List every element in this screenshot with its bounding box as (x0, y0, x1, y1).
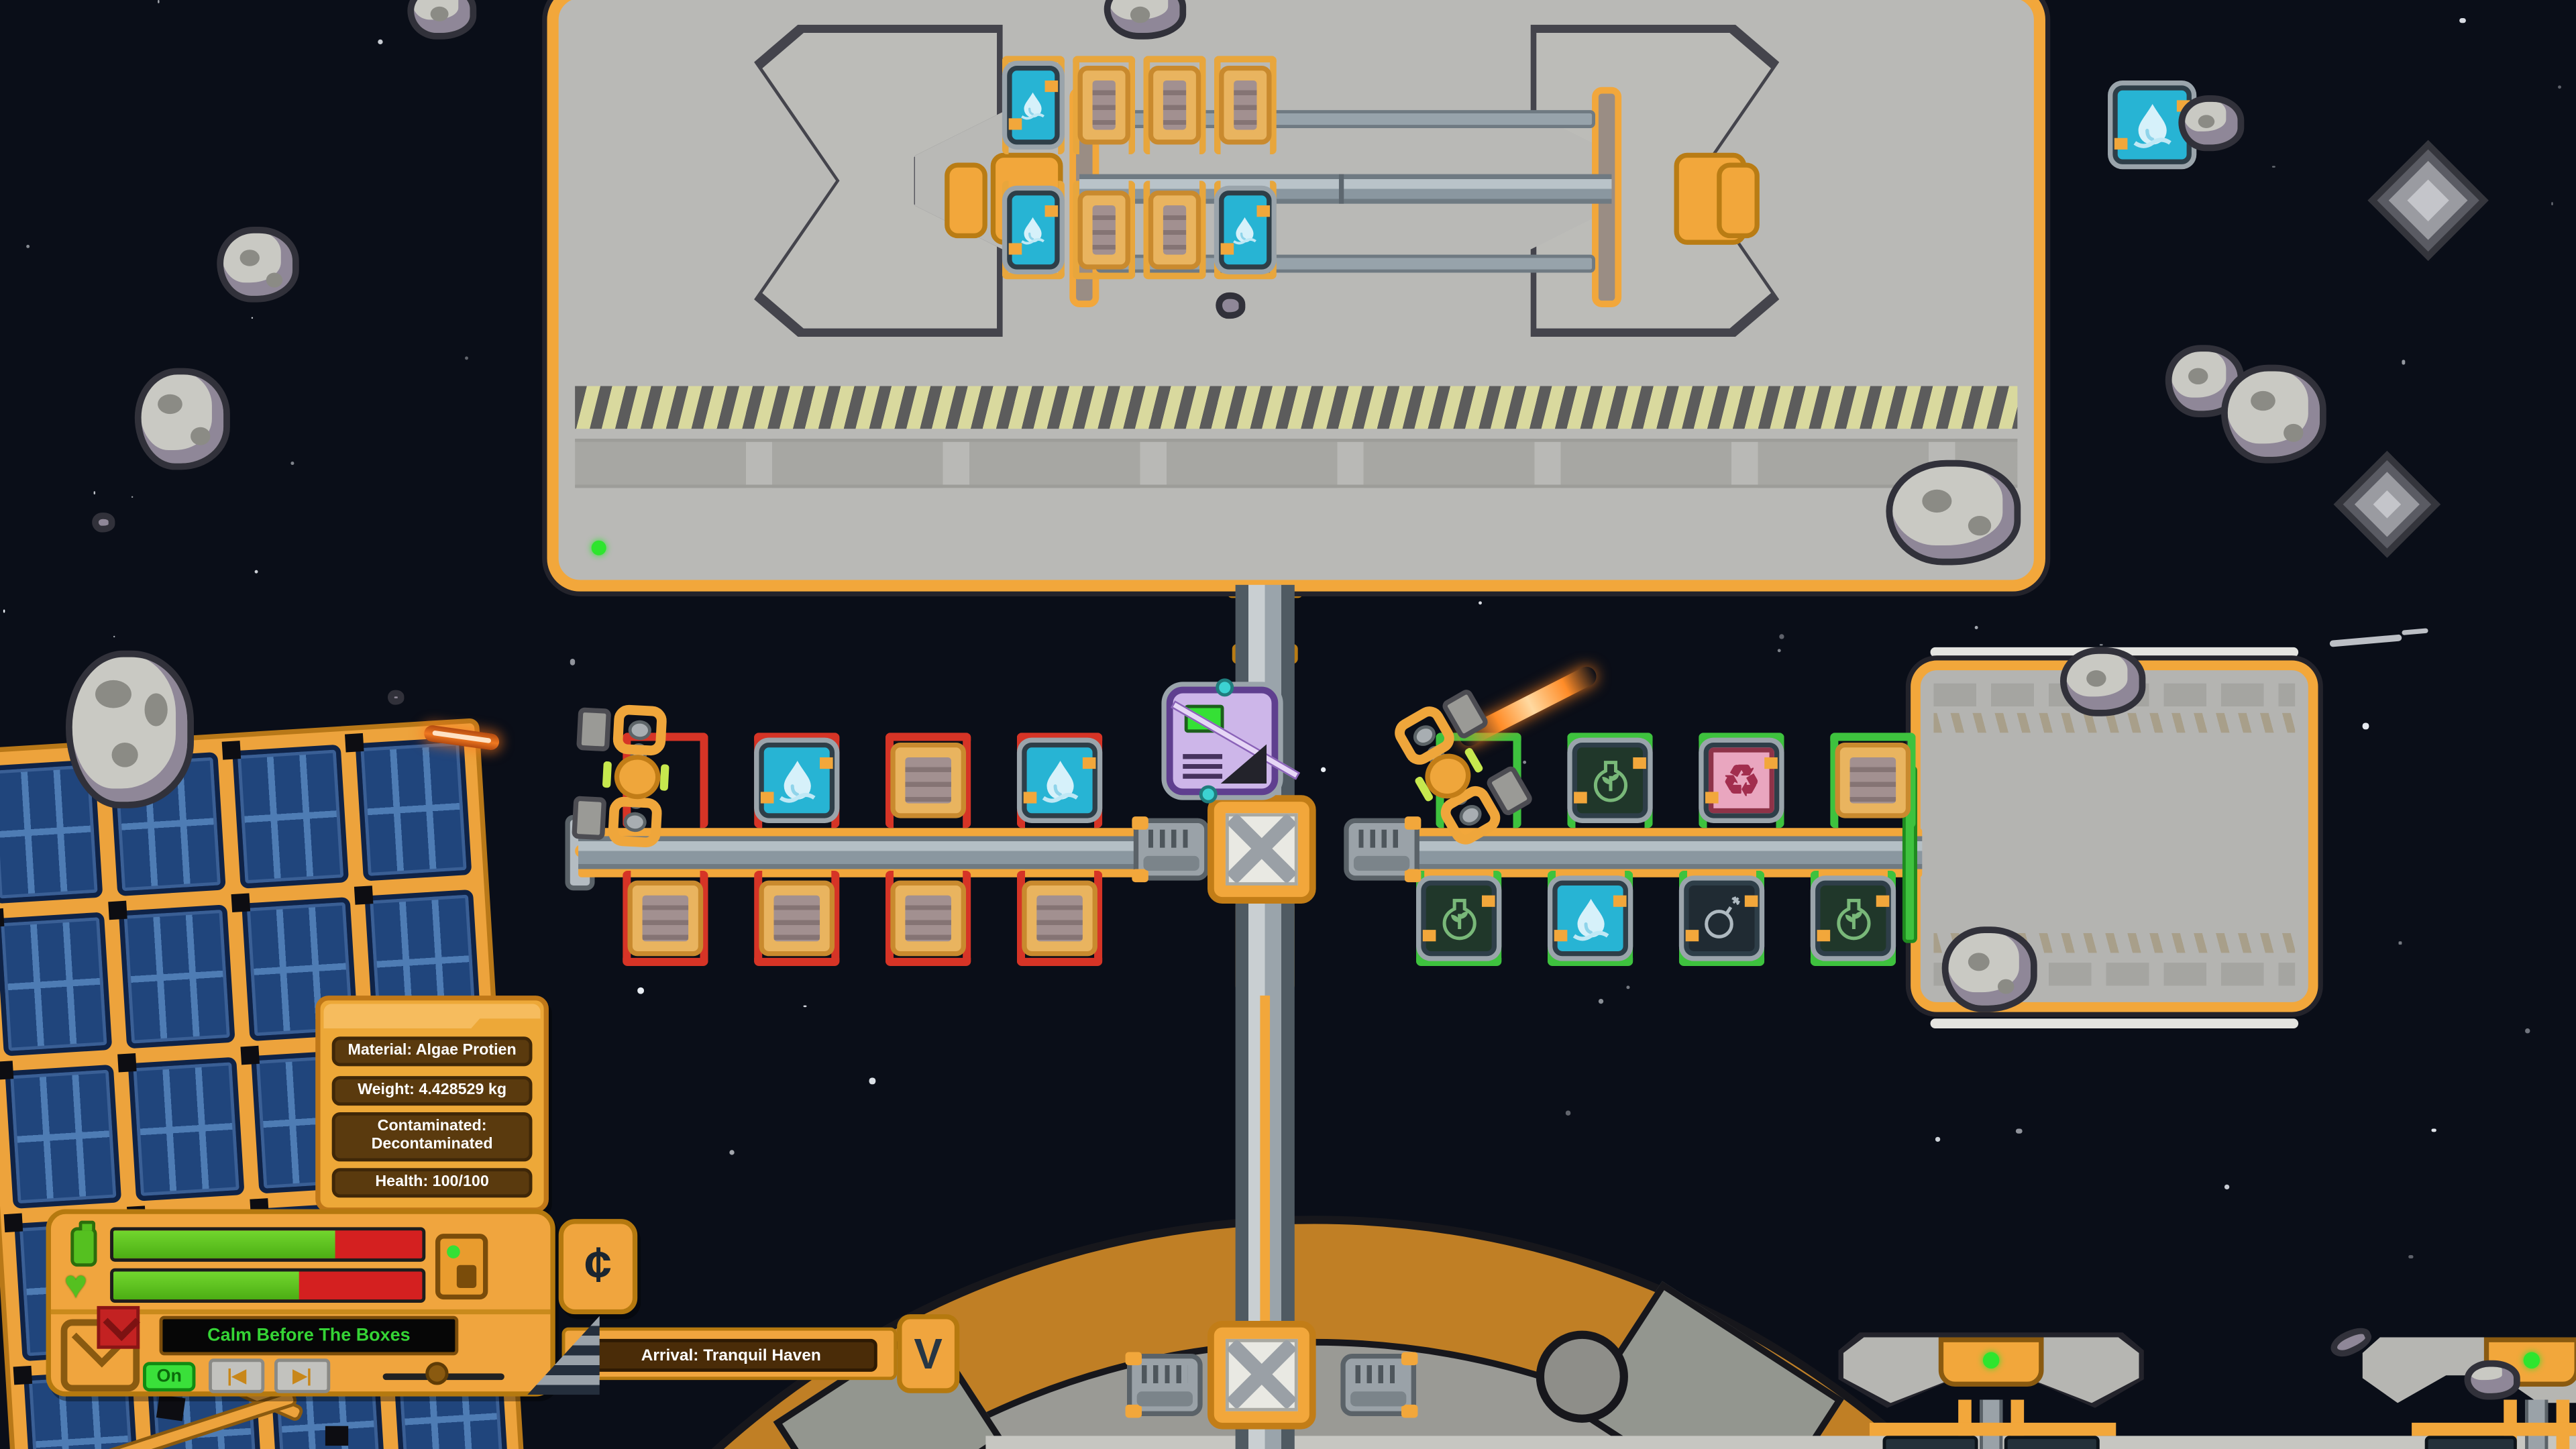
star (1566, 1111, 1570, 1116)
worker-bot[interactable] (578, 708, 670, 843)
star (1935, 1137, 1940, 1142)
conveyor-rack-left-top (623, 733, 1102, 828)
arrival-banner: Arrival: Tranquil Haven (562, 1328, 898, 1380)
tooltip-weight: Weight: 4.428529 kg (332, 1076, 533, 1106)
star (2402, 360, 2406, 364)
truss-joint (156, 1395, 186, 1421)
star (2224, 1185, 2229, 1190)
rail-coupler (1134, 818, 1210, 881)
cargo-crate-crate[interactable] (1835, 743, 1911, 818)
health-icon: ♥ (64, 1267, 88, 1306)
fuel-bar (110, 1227, 425, 1261)
rail-coupler (1344, 818, 1419, 881)
rack-slot (623, 871, 708, 966)
next-track-button[interactable]: ▶| (274, 1358, 330, 1393)
asteroid (2060, 647, 2145, 716)
pipe-junction-lower[interactable] (1207, 1321, 1316, 1430)
star (291, 462, 294, 464)
solar-cell (356, 737, 472, 881)
star (2399, 942, 2401, 944)
cargo-crate-crate[interactable] (628, 881, 704, 957)
solar-cell (128, 1057, 245, 1201)
star (93, 491, 96, 494)
cargo-crate-crate[interactable] (890, 743, 966, 818)
fuel-icon (70, 1227, 97, 1267)
lamp-status-light (1983, 1352, 1999, 1368)
solar-cell (0, 912, 112, 1056)
star (377, 40, 382, 45)
truss-joint (325, 1426, 348, 1446)
star (2408, 1255, 2412, 1259)
asteroid (92, 513, 115, 532)
dock-floor-edge (985, 1436, 2576, 1449)
clamp-connector (945, 162, 987, 238)
rack-slot (1143, 56, 1205, 154)
star (637, 987, 643, 994)
star (3, 610, 5, 613)
currency-symbol: ¢ (584, 1239, 612, 1295)
asteroid (1942, 926, 2037, 1012)
rack-slot (1830, 733, 1915, 828)
rack-slot (1567, 733, 1652, 828)
asteroid (135, 368, 230, 470)
stored-crate (2425, 1436, 2517, 1449)
star (251, 317, 253, 319)
tooltip-health: Health: 100/100 (332, 1168, 533, 1197)
scanner-knob (1216, 678, 1234, 696)
porthole (1536, 1331, 1628, 1423)
star (2557, 86, 2561, 89)
star (804, 1005, 806, 1008)
station-status-light (592, 541, 606, 555)
rack-slot (1017, 871, 1102, 966)
cargo-tooltip: Material: Algae Protien Weight: 4.428529… (315, 996, 549, 1212)
star (1777, 648, 1782, 653)
cargo-crate-crate[interactable] (1022, 881, 1097, 957)
star (2460, 17, 2465, 23)
rack-slot (1143, 180, 1205, 279)
station-rack-row-top (1002, 56, 1285, 154)
arrival-text: Arrival: Tranquil Haven (585, 1339, 877, 1372)
station-rack-row-bottom (1002, 180, 1285, 279)
cargo-crate-water[interactable] (759, 743, 835, 818)
star (1598, 998, 1604, 1004)
cargo-crate-plant[interactable] (1815, 881, 1891, 957)
asteroid (2221, 365, 2326, 464)
rack-slot (1017, 733, 1102, 828)
dock-lamp (1843, 1337, 2139, 1449)
cargo-crate-crate[interactable] (1219, 66, 1271, 145)
transit-pipe-mid (1236, 897, 1295, 1328)
tooltip-contaminated: Contaminated: Decontaminated (332, 1112, 533, 1161)
star (113, 635, 116, 638)
clamp-connector (1717, 162, 1760, 238)
asteroid (2178, 95, 2244, 151)
cargo-crate-plant[interactable] (1572, 743, 1648, 818)
cargo-crate-crate[interactable] (1148, 191, 1201, 270)
tooltip-header (323, 1004, 540, 1028)
star (2432, 1128, 2436, 1132)
star (1479, 602, 1482, 605)
rail-coupler (1340, 1354, 1416, 1416)
cargo-crate-water[interactable] (1219, 191, 1271, 270)
cargo-crate-recycle[interactable]: ♻ (1704, 743, 1780, 818)
radio-device-icon[interactable] (435, 1234, 488, 1299)
pipe-junction[interactable] (1207, 795, 1316, 904)
rack-slot (1073, 56, 1135, 154)
stored-crate (2004, 1436, 2100, 1449)
solar-cell (232, 745, 349, 889)
star (869, 1078, 875, 1084)
game-viewport: ♻ (0, 0, 2576, 1449)
star (2272, 165, 2275, 168)
star (254, 570, 257, 574)
conveyor-rack-left-bottom (623, 871, 1102, 966)
rail-coupler (1127, 1354, 1203, 1416)
star (570, 659, 576, 665)
conveyor-rack-right-bottom (1416, 871, 1896, 966)
volume-slider-knob[interactable] (425, 1362, 448, 1385)
lamp-status-light (2524, 1352, 2540, 1368)
rack-slot (1811, 871, 1896, 966)
cargo-station (547, 0, 2045, 592)
asteroid (1886, 460, 2021, 566)
station-wall-panels (575, 439, 2017, 488)
conveyor-rail-left (578, 828, 1163, 877)
star (1627, 985, 1629, 988)
mail-alert-badge (97, 1306, 140, 1349)
asteroid (217, 227, 299, 303)
health-bar-fill (113, 1272, 299, 1300)
solar-cell (5, 1065, 121, 1209)
cargo-crate-bomb[interactable] (1684, 881, 1760, 957)
asteroid (388, 690, 404, 705)
rack-slot: ♻ (1699, 733, 1784, 828)
rack-slot (1002, 56, 1065, 154)
currency-tab[interactable]: ¢ (559, 1219, 638, 1314)
cargo-crate-water[interactable] (1007, 66, 1059, 145)
asteroid (1216, 292, 1245, 319)
arrival-expand-button[interactable]: V (897, 1314, 959, 1393)
solar-cell (119, 904, 235, 1049)
stored-crate (1883, 1436, 1978, 1449)
cargo-crate-water[interactable] (1007, 191, 1059, 270)
cargo-crate-crate[interactable] (890, 881, 966, 957)
star (158, 1, 160, 3)
scanner-knob (1199, 786, 1218, 804)
cargo-crate-water[interactable] (1552, 881, 1628, 957)
star (2525, 1029, 2530, 1034)
cargo-crate-crate[interactable] (1078, 191, 1130, 270)
cargo-crate-plant[interactable] (1421, 881, 1497, 957)
dock-lamp (2363, 1337, 2576, 1449)
music-power-button[interactable]: On (143, 1362, 195, 1391)
cargo-crate-crate[interactable] (1148, 66, 1201, 145)
star (2100, 643, 2102, 646)
star (131, 496, 133, 498)
star (729, 1150, 734, 1155)
hazard-stripe-band (575, 386, 2017, 429)
star (2363, 723, 2369, 729)
cargo-crate-crate[interactable] (1078, 66, 1130, 145)
scanner-machine[interactable] (1167, 687, 1279, 796)
music-track-display: Calm Before The Boxes (160, 1316, 459, 1356)
star (2017, 1128, 2023, 1134)
health-bar (110, 1269, 425, 1303)
rack-slot (1073, 180, 1135, 279)
fuel-bar-fill (113, 1230, 335, 1258)
asteroid (66, 651, 194, 808)
rack-slot (754, 733, 839, 828)
dock-edge-bar (1931, 1018, 2299, 1028)
rack-slot (1214, 56, 1277, 154)
rack-slot (1679, 871, 1764, 966)
star (2551, 203, 2554, 206)
rack-slot (1002, 180, 1065, 279)
star (1974, 626, 1978, 629)
rack-slot (885, 733, 971, 828)
cargo-crate-water[interactable] (1022, 743, 1097, 818)
star (1778, 634, 1783, 639)
tooltip-material: Material: Algae Protien (332, 1036, 533, 1066)
rack-slot (1548, 871, 1633, 966)
star (465, 356, 468, 360)
rack-slot (1416, 871, 1501, 966)
star (25, 245, 29, 248)
ship-hud-panel: ♥ Calm Before The Boxes On |◀ ▶| (46, 1209, 555, 1396)
cargo-crate-crate[interactable] (759, 881, 835, 957)
rack-slot (754, 871, 839, 966)
asteroid (2464, 1360, 2520, 1400)
star (1321, 767, 1326, 772)
prev-track-button[interactable]: |◀ (209, 1358, 264, 1393)
rack-slot (885, 871, 971, 966)
rack-slot (1214, 180, 1277, 279)
